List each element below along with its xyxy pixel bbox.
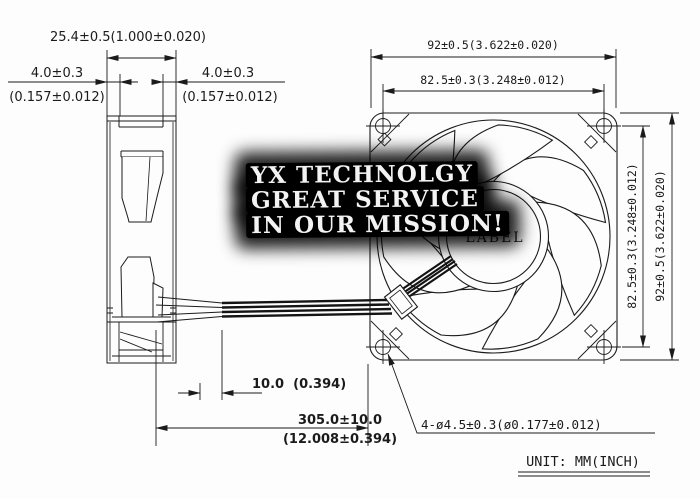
drawing-canvas: LABEL <box>0 0 700 499</box>
dim-width-outer-text: 92±0.5(3.622±0.020) <box>427 38 559 52</box>
dim-wire-strip <box>178 330 262 400</box>
side-view-lower-blade <box>121 257 163 317</box>
dim-thickness <box>107 50 176 116</box>
dim-width-holes-text: 82.5±0.3(3.248±0.012) <box>420 73 565 87</box>
unit-note-text: UNIT: MM(INCH) <box>526 454 640 470</box>
watermark: YX TECHNOLGY GREAT SERVICE IN OUR MISSIO… <box>246 161 510 238</box>
mounting-hole-bottom-right <box>587 330 621 364</box>
dim-flange-right-mm-text: 4.0±0.3 <box>202 66 254 81</box>
unit-underline <box>518 472 650 476</box>
hole-callout-text: 4-ø4.5±0.3(ø0.177±0.012) <box>421 417 602 432</box>
dim-wire-length-inch-text: (12.008±0.394) <box>283 432 397 447</box>
side-view-upper-blade <box>121 151 163 222</box>
dim-flange-left-mm-text: 4.0±0.3 <box>31 66 83 81</box>
dim-wire-strip-text: 10.0 (0.394) <box>252 377 346 392</box>
dim-width-holes <box>383 84 604 120</box>
mounting-hole-bottom-left <box>366 330 400 364</box>
dim-thickness-text: 25.4±0.5(1.000±0.020) <box>50 30 206 45</box>
fan-technical-drawing: LABEL <box>0 0 700 499</box>
dim-height-outer-text: 92±0.5(3.622±0.020) <box>653 170 667 302</box>
side-view <box>107 116 176 363</box>
dim-flange-left-inch-text: (0.157±0.012) <box>9 90 104 105</box>
exit-wire-bundle <box>156 297 392 322</box>
watermark-line-3: IN OUR MISSION! <box>246 211 509 238</box>
dim-flange-right-inch-text: (0.157±0.012) <box>182 90 277 105</box>
dim-wire-length-mm-text: 305.0±10.0 <box>298 413 382 428</box>
dim-height-holes-text: 82.5±0.3(3.248±0.012) <box>625 163 639 308</box>
side-view-frame <box>107 116 176 363</box>
watermark-line-1: YX TECHNOLGY <box>246 161 478 188</box>
stripped-wire-ends <box>156 297 222 322</box>
watermark-line-2: GREAT SERVICE <box>246 186 484 213</box>
